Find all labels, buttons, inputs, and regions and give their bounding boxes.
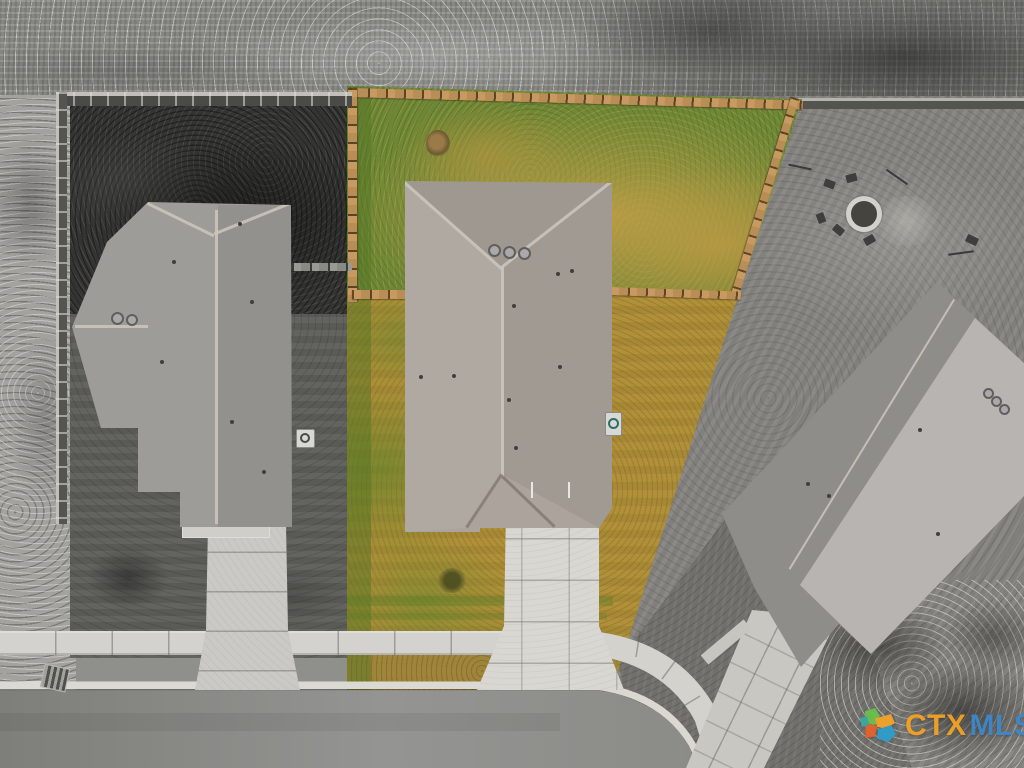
- watermark-prefix: CTX: [905, 711, 967, 741]
- vent-pipe: [160, 360, 164, 364]
- vent-pipe: [452, 374, 456, 378]
- vent-pipe: [936, 532, 940, 536]
- roof-vent: [503, 246, 516, 259]
- roof-vent: [111, 312, 124, 325]
- roof-vent: [488, 244, 501, 257]
- vent-pipe: [556, 272, 560, 276]
- backyard-shrub: [426, 130, 450, 157]
- left-ac-unit: [296, 429, 315, 448]
- vent-pipe: [262, 470, 266, 474]
- ctxmls-watermark: CTXMLS: [860, 700, 1024, 752]
- fire-pit-patio: [874, 196, 940, 246]
- front-lawn-dirt-spot: [438, 568, 466, 593]
- roof-hip: [147, 202, 215, 237]
- vent-pipe: [250, 300, 254, 304]
- vent-pipe: [230, 420, 234, 424]
- right-neighbor-back-fence: [795, 98, 1024, 109]
- porch-post: [531, 482, 533, 498]
- vent-pipe: [507, 398, 511, 402]
- vent-pipe: [806, 482, 810, 486]
- vent-pipe: [514, 446, 518, 450]
- vent-pipe: [570, 269, 574, 273]
- left-neighbor-back-fence: [56, 92, 352, 106]
- vent-pipe: [419, 375, 423, 379]
- ctxmls-logo-icon: [860, 703, 900, 749]
- watermark-suffix: MLS: [970, 711, 1024, 741]
- ac-fan: [300, 433, 310, 443]
- vent-pipe: [827, 494, 831, 498]
- roof-vent: [999, 404, 1010, 415]
- ac-fan: [608, 418, 619, 429]
- fire-pit: [846, 196, 882, 232]
- roof-vent: [126, 314, 138, 326]
- fence-gate-left: [352, 290, 409, 299]
- featured-ac-unit: [605, 412, 622, 436]
- street-surface: [0, 690, 698, 768]
- roof-ridge: [501, 266, 504, 477]
- roof-vent: [518, 247, 531, 260]
- vent-pipe: [918, 428, 922, 432]
- field-dark-brush: [540, 0, 1024, 102]
- porch-post: [568, 482, 570, 498]
- vent-pipe: [172, 260, 176, 264]
- storm-drain-grate: [40, 664, 70, 693]
- logo-piece-blue: [877, 725, 896, 742]
- roof-ridge: [215, 210, 218, 524]
- vent-pipe: [558, 365, 562, 369]
- vent-pipe: [512, 304, 516, 308]
- left-neighbor-side-fence: [56, 92, 67, 524]
- vent-pipe: [238, 222, 242, 226]
- roof-ridge: [75, 325, 148, 328]
- neighbor-fence-connector: [292, 263, 352, 271]
- aerial-photo: CTXMLS: [0, 0, 1024, 768]
